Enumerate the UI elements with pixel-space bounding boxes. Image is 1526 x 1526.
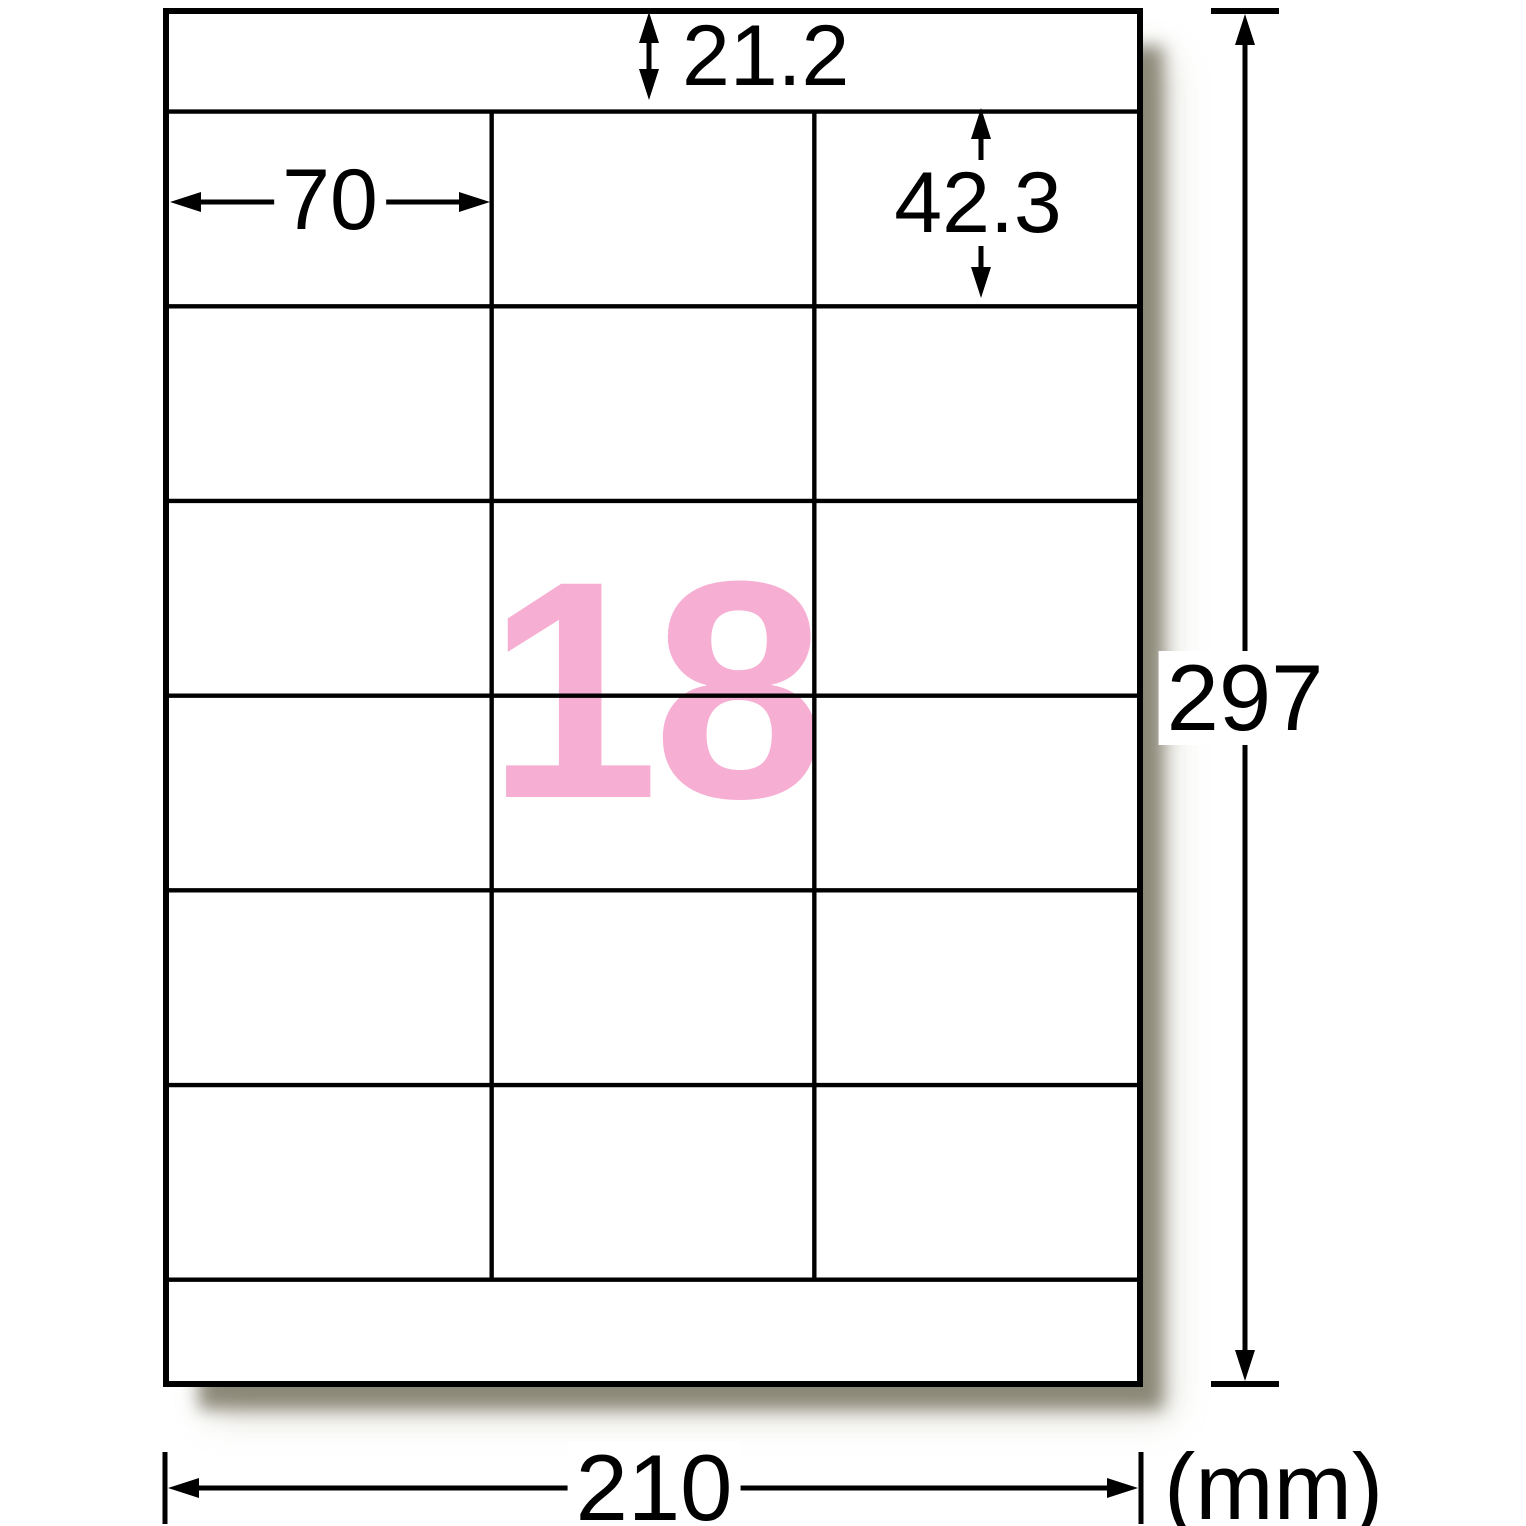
- page-height-value: 297: [1159, 651, 1332, 745]
- dimension-arrows: [0, 0, 1526, 1526]
- label-height-value: 42.3: [886, 160, 1069, 246]
- label-sheet-dimension-diagram: 18: [0, 0, 1526, 1526]
- page-width-value: 210: [568, 1441, 741, 1526]
- unit-label: (mm): [1164, 1440, 1383, 1526]
- top-margin-arrow: [639, 12, 659, 100]
- label-width-value: 70: [274, 157, 386, 243]
- top-margin-value: 21.2: [682, 13, 849, 99]
